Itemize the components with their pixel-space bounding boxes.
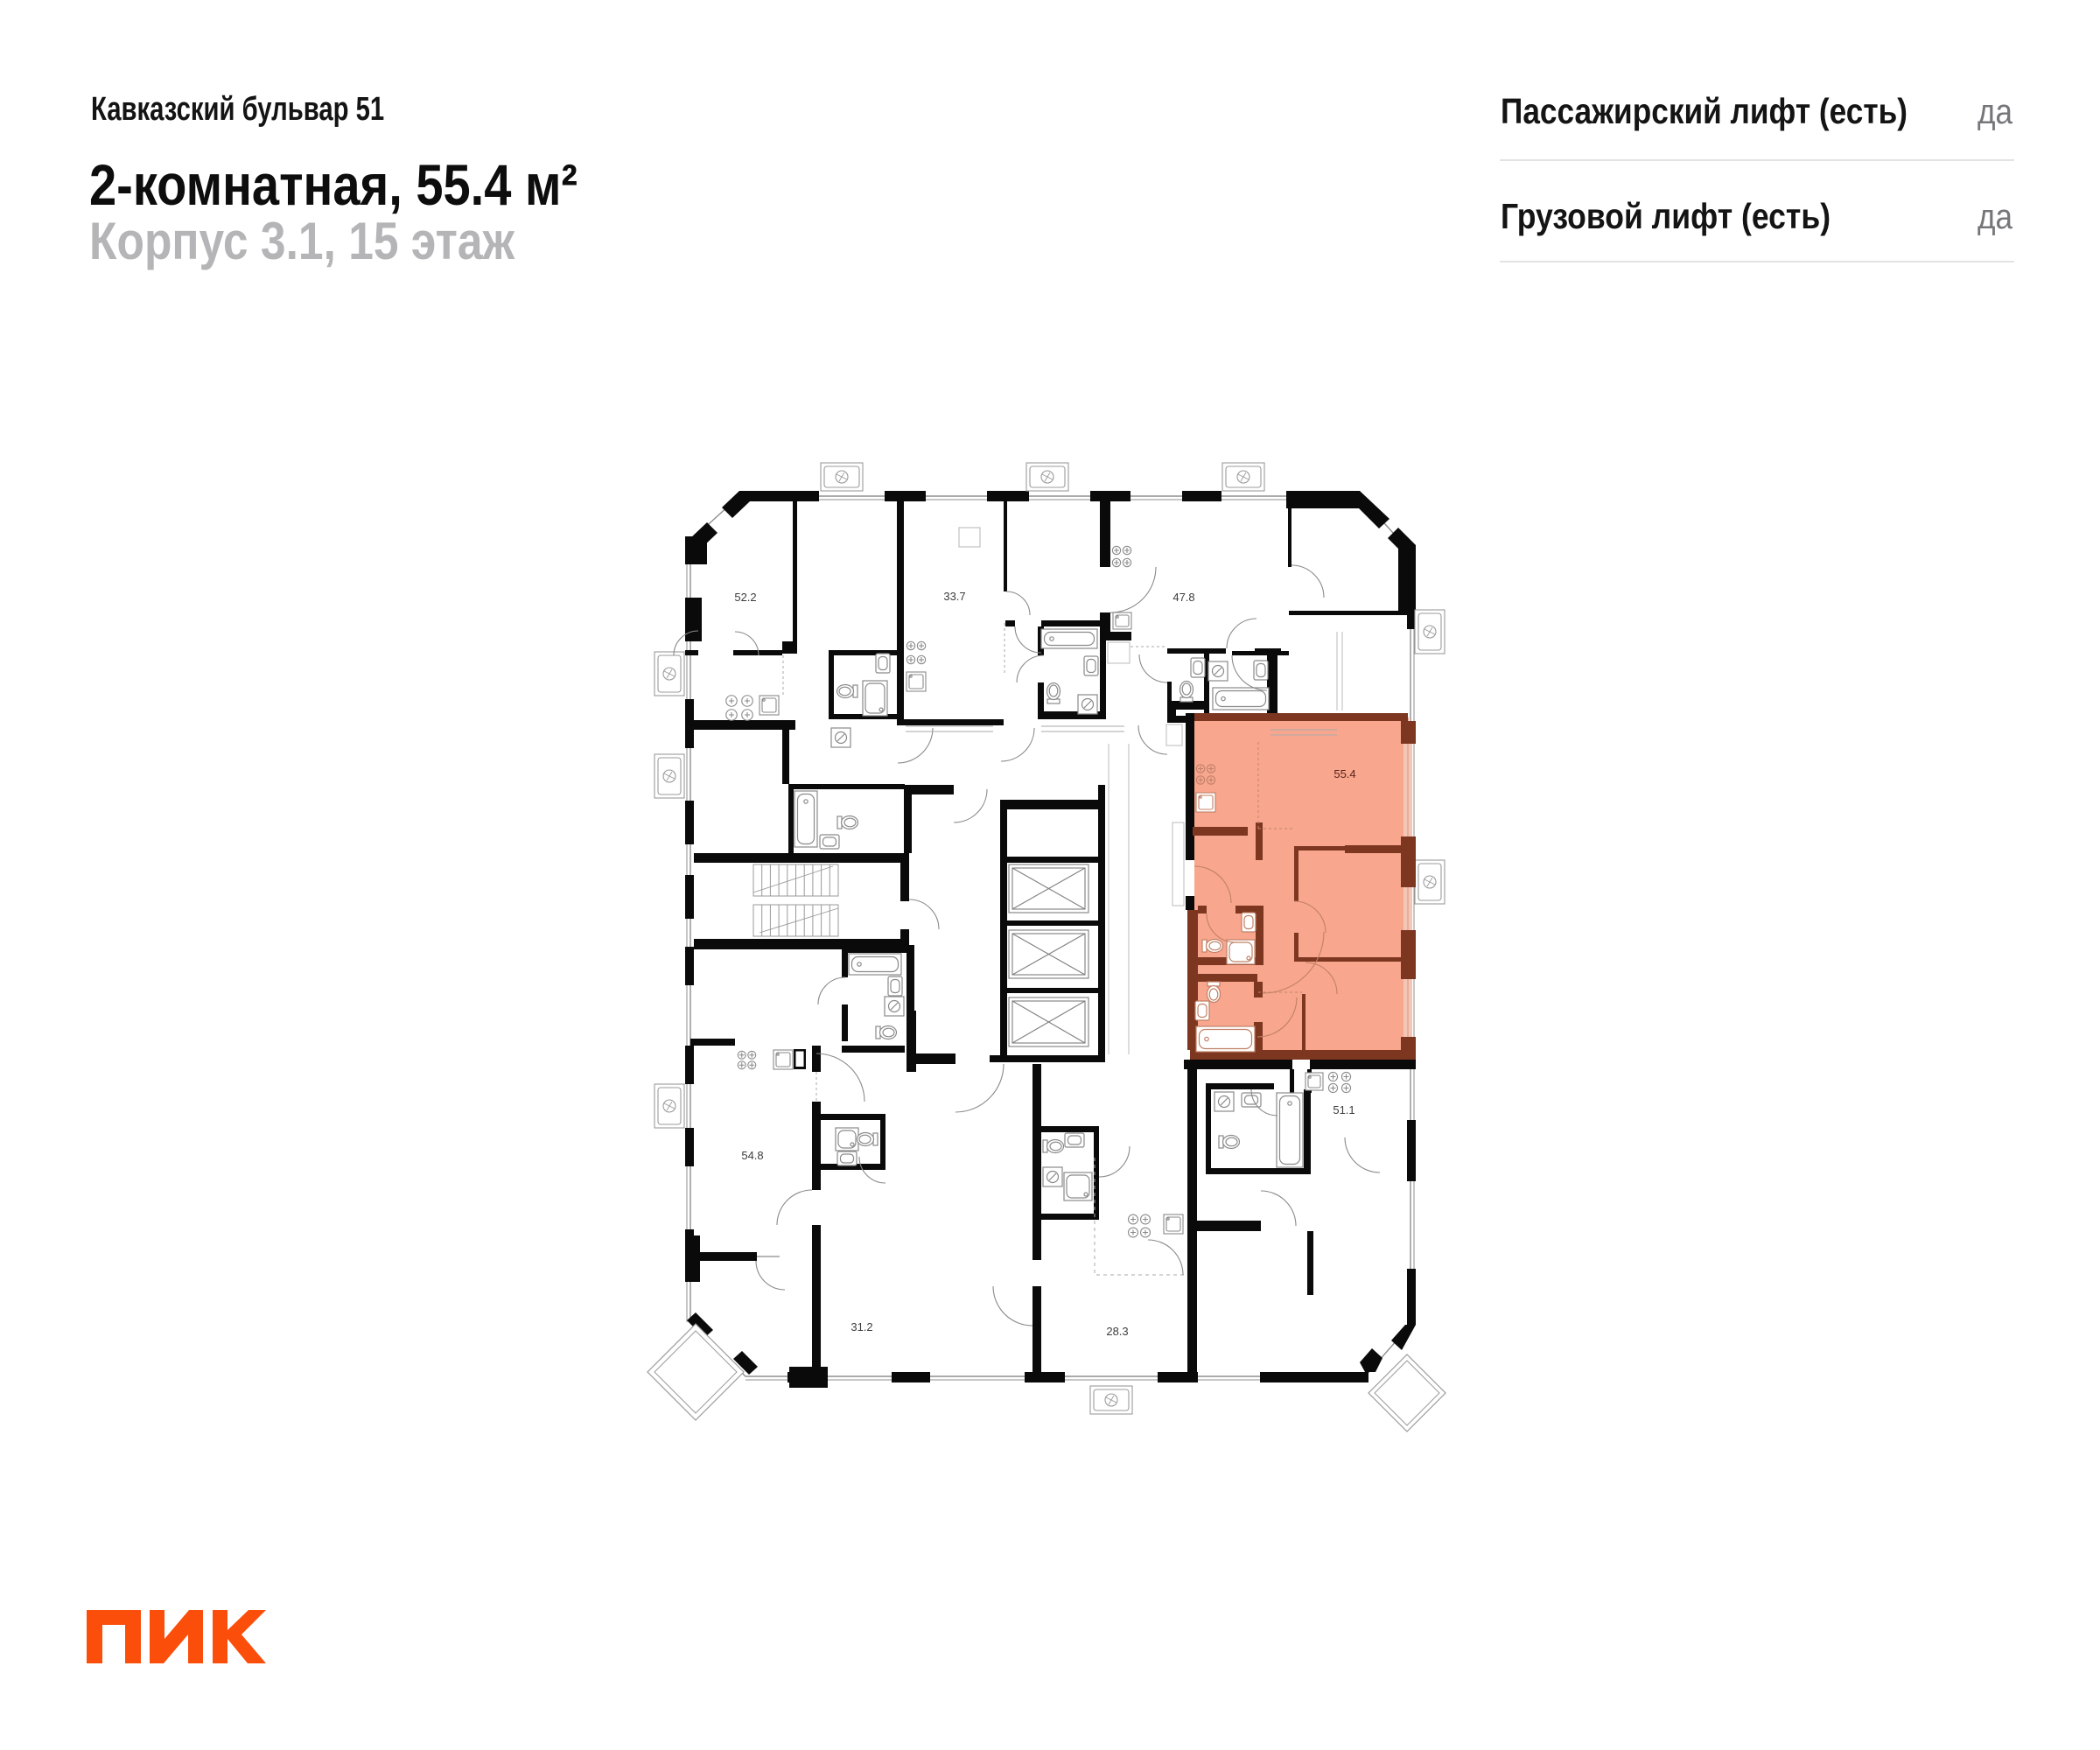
svg-text:52.2: 52.2 [734,591,756,604]
svg-text:28.3: 28.3 [1106,1325,1128,1338]
svg-text:47.8: 47.8 [1172,591,1194,604]
svg-text:55.4: 55.4 [1333,767,1355,780]
svg-text:33.7: 33.7 [943,590,965,603]
svg-text:54.8: 54.8 [741,1149,763,1162]
svg-text:31.2: 31.2 [850,1320,872,1333]
svg-text:51.1: 51.1 [1333,1103,1354,1116]
